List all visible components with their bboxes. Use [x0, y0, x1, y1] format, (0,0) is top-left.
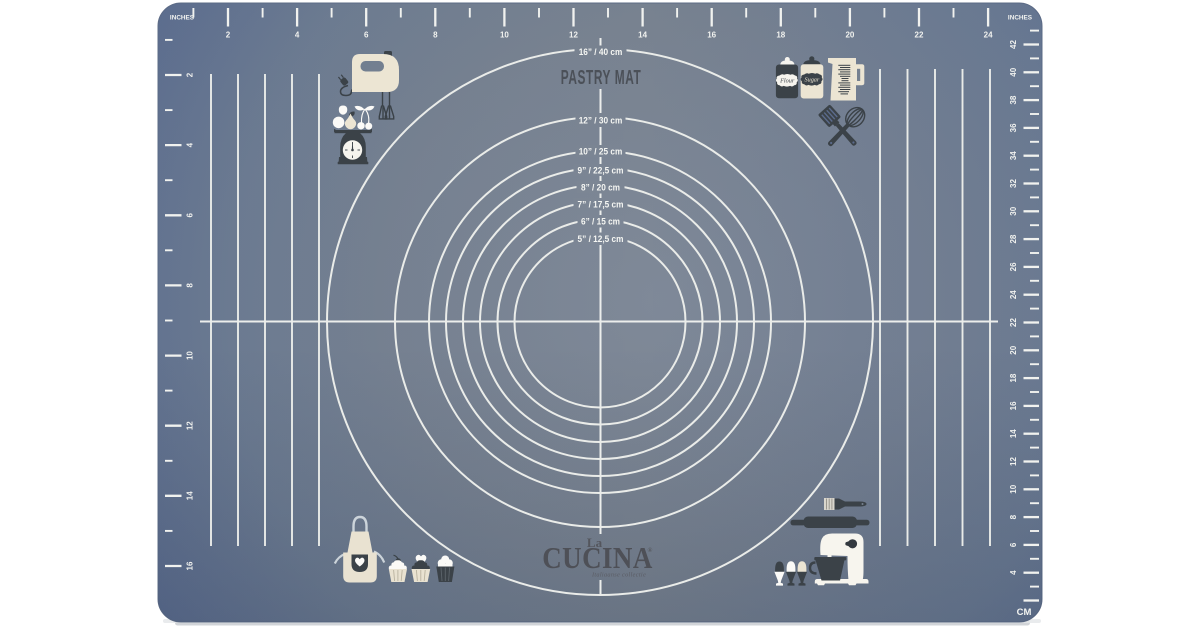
svg-text:7” / 17,5 cm: 7” / 17,5 cm	[578, 199, 624, 210]
svg-text:8: 8	[1009, 514, 1018, 519]
svg-text:6: 6	[364, 31, 369, 40]
svg-text:8: 8	[433, 31, 438, 40]
svg-text:2: 2	[226, 31, 231, 40]
svg-text:18: 18	[1009, 373, 1018, 382]
svg-text:Sugar: Sugar	[805, 77, 820, 84]
svg-text:20: 20	[845, 31, 854, 40]
svg-text:Flour: Flour	[779, 78, 795, 85]
svg-text:Italiaanse collectie: Italiaanse collectie	[591, 572, 646, 579]
svg-text:16: 16	[1009, 401, 1018, 410]
svg-text:INCHES: INCHES	[170, 15, 195, 22]
svg-text:8: 8	[186, 283, 195, 288]
svg-text:12: 12	[569, 31, 578, 40]
svg-text:5” / 12,5 cm: 5” / 12,5 cm	[578, 233, 624, 244]
svg-text:16: 16	[186, 561, 195, 570]
svg-text:26: 26	[1009, 262, 1018, 271]
svg-text:12: 12	[186, 421, 195, 430]
svg-text:24: 24	[984, 31, 993, 40]
svg-text:6” / 15 cm: 6” / 15 cm	[581, 216, 620, 227]
svg-text:16: 16	[707, 31, 716, 40]
svg-text:12” / 30 cm: 12” / 30 cm	[579, 115, 623, 126]
svg-text:42: 42	[1009, 40, 1018, 49]
svg-text:14: 14	[186, 491, 195, 500]
svg-text:CUCINA: CUCINA	[542, 541, 652, 575]
svg-text:9” / 22,5 cm: 9” / 22,5 cm	[578, 165, 624, 176]
svg-text:24: 24	[1009, 290, 1018, 299]
svg-text:18: 18	[776, 31, 785, 40]
svg-text:20: 20	[1009, 345, 1018, 354]
svg-text:28: 28	[1009, 234, 1018, 243]
svg-text:4: 4	[1009, 570, 1018, 575]
svg-text:8” / 20 cm: 8” / 20 cm	[581, 182, 620, 193]
svg-text:®: ®	[648, 547, 653, 554]
svg-text:PASTRY MAT: PASTRY MAT	[561, 66, 642, 89]
svg-text:34: 34	[1009, 151, 1018, 160]
svg-text:12: 12	[1009, 457, 1018, 466]
svg-text:2: 2	[186, 72, 195, 77]
svg-text:22: 22	[1009, 318, 1018, 327]
svg-text:30: 30	[1009, 206, 1018, 215]
svg-text:INCHES: INCHES	[1008, 15, 1033, 22]
svg-text:4: 4	[186, 142, 195, 147]
svg-text:14: 14	[638, 31, 647, 40]
svg-text:6: 6	[1009, 542, 1018, 547]
svg-text:10” / 25 cm: 10” / 25 cm	[579, 146, 623, 157]
svg-text:16” / 40 cm: 16” / 40 cm	[579, 46, 623, 57]
svg-text:14: 14	[1009, 429, 1018, 438]
svg-text:22: 22	[915, 31, 924, 40]
svg-text:10: 10	[1009, 484, 1018, 493]
svg-text:10: 10	[186, 351, 195, 360]
svg-text:6: 6	[186, 213, 195, 218]
svg-text:36: 36	[1009, 123, 1018, 132]
svg-text:10: 10	[500, 31, 509, 40]
svg-text:CM: CM	[1017, 607, 1032, 618]
svg-text:38: 38	[1009, 95, 1018, 104]
svg-text:40: 40	[1009, 67, 1018, 76]
svg-text:32: 32	[1009, 179, 1018, 188]
svg-text:4: 4	[295, 31, 300, 40]
